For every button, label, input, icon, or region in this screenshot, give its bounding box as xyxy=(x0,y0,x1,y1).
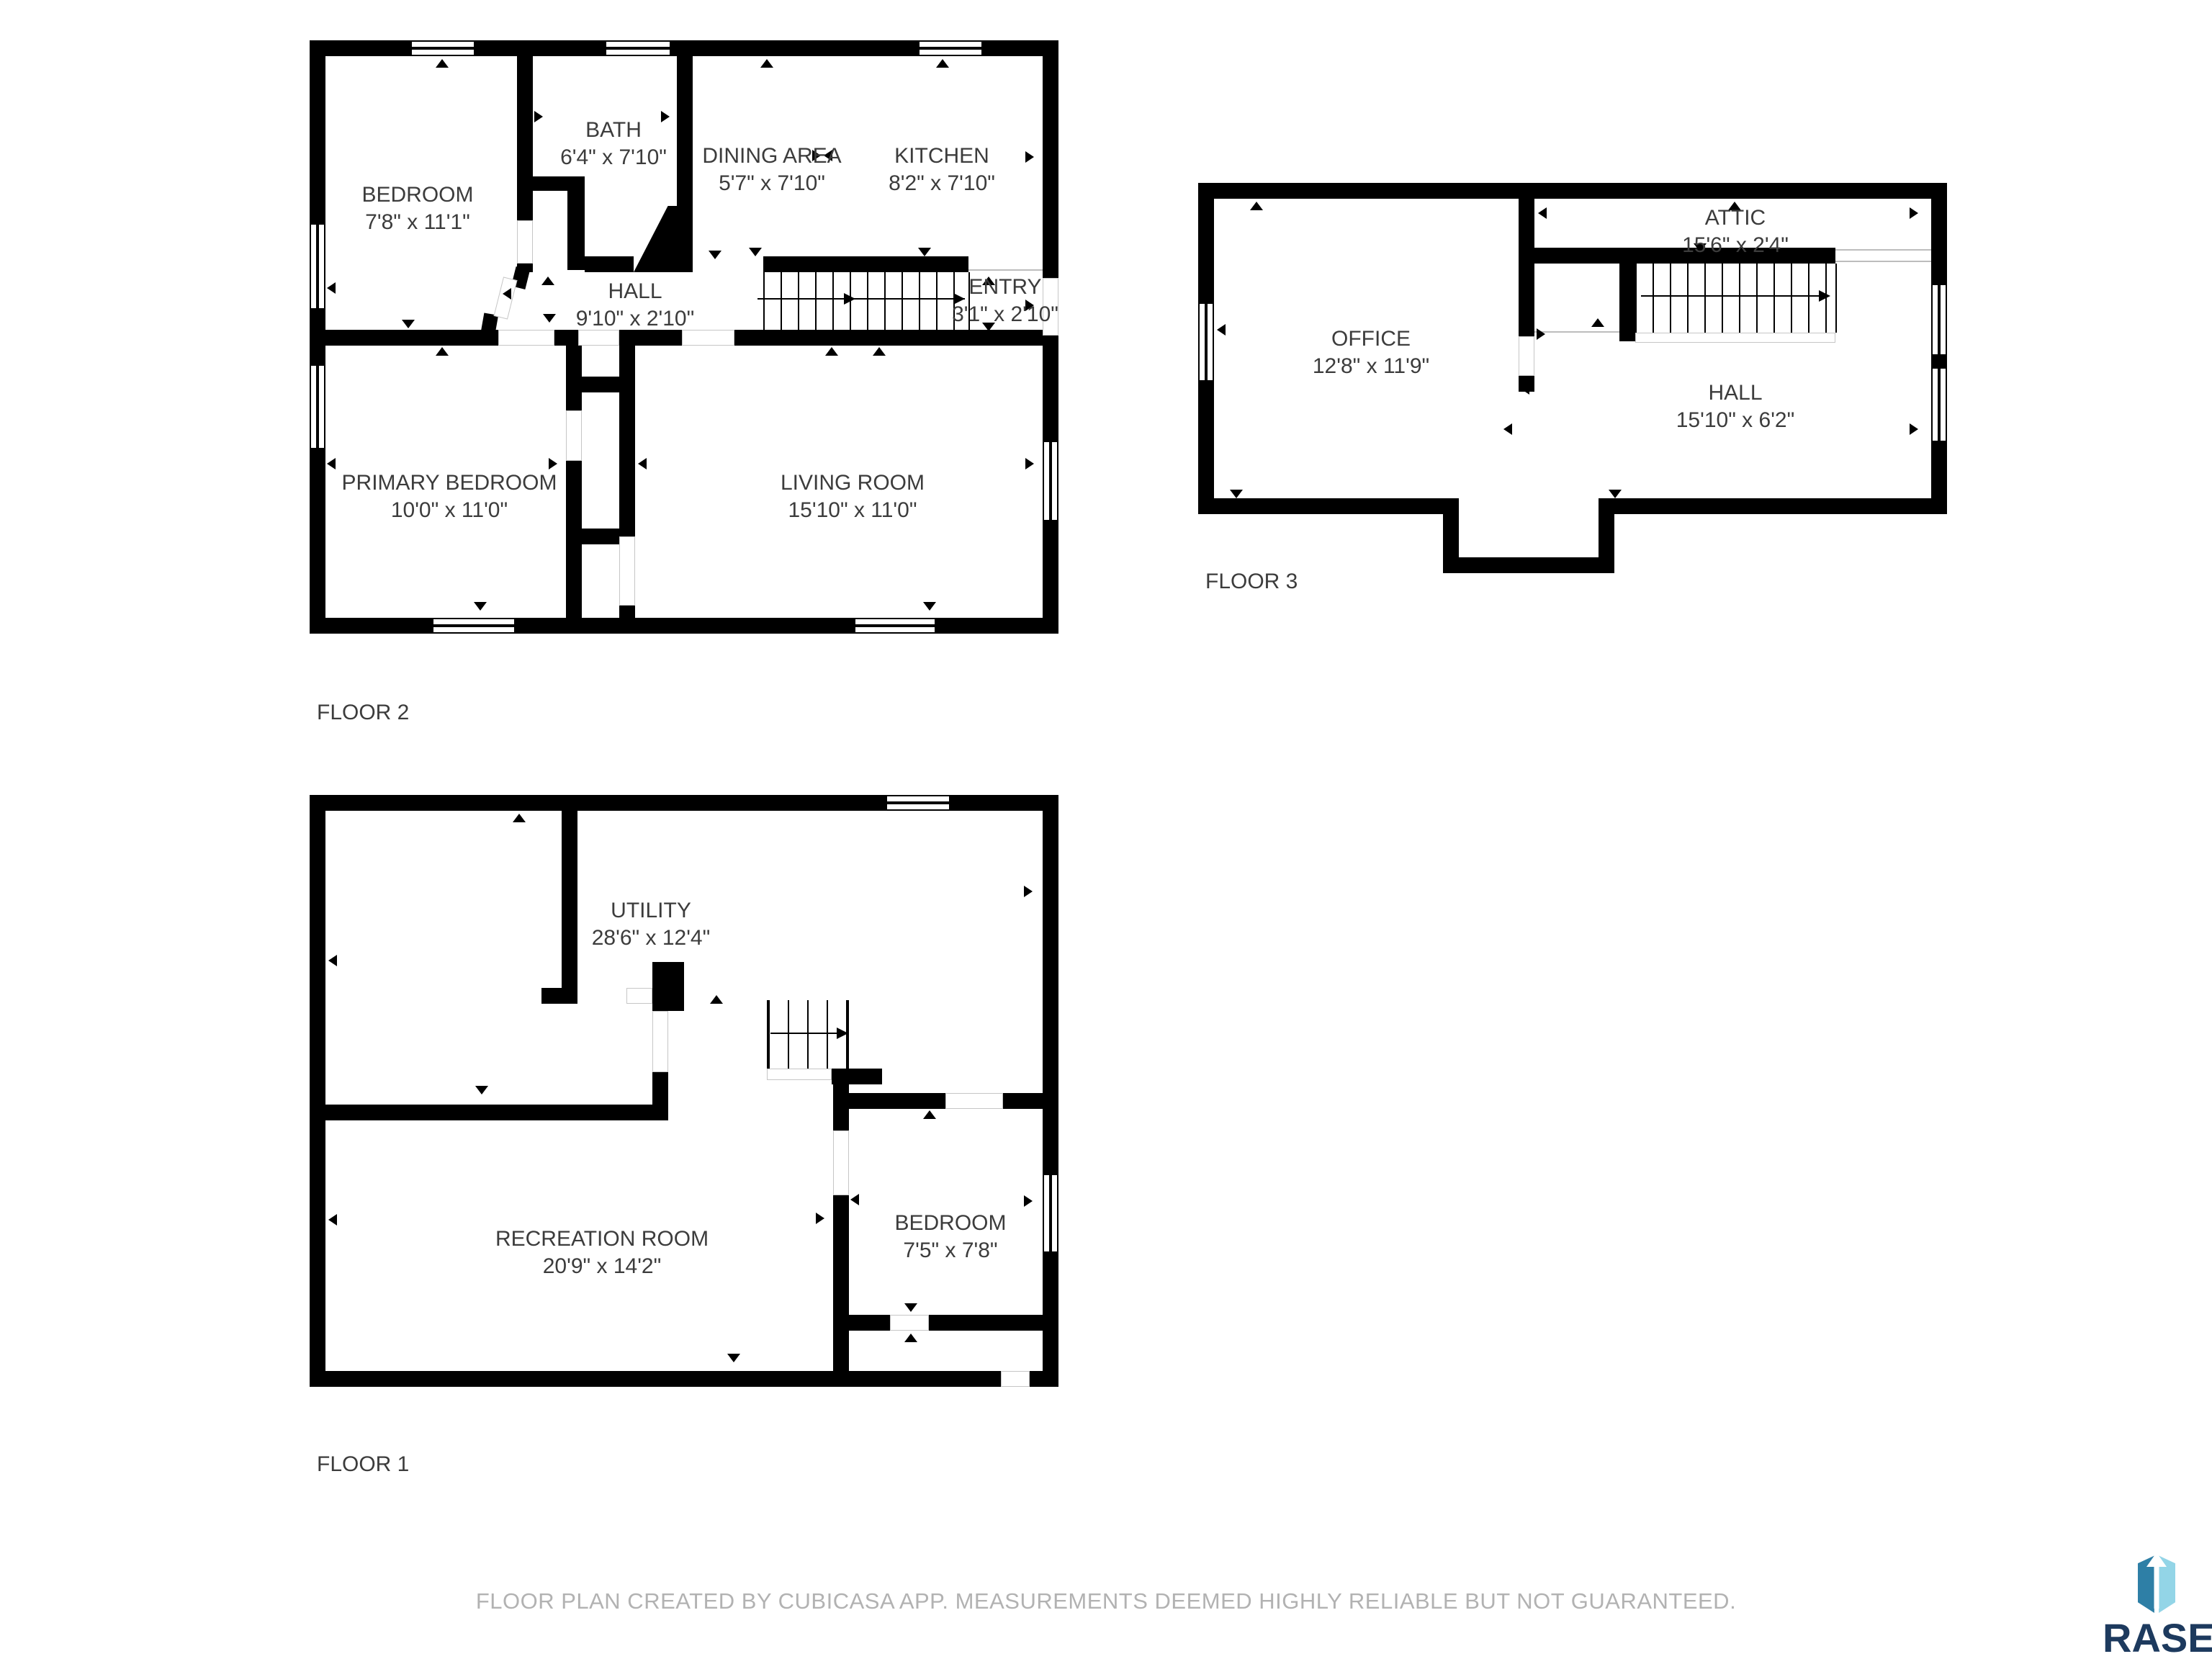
room-label-entry: ENTRY 3'1" x 2'10" xyxy=(952,274,1058,328)
door-opening xyxy=(1001,1371,1030,1387)
room-dims: 8'2" x 7'10" xyxy=(889,170,995,197)
door-opening xyxy=(626,988,652,1004)
room-name: HALL xyxy=(576,278,695,305)
arrow-marker-icon xyxy=(513,814,526,822)
room-label-bedroom-floor1: BEDROOM 7'5" x 7'8" xyxy=(894,1210,1006,1264)
arrow-marker-icon xyxy=(760,59,773,68)
door-opening xyxy=(945,1093,1003,1109)
arrow-marker-icon xyxy=(474,602,487,611)
window xyxy=(605,40,671,56)
door-opening xyxy=(652,1011,668,1072)
room-name: OFFICE xyxy=(1313,325,1429,353)
room-dims: 6'4" x 7'10" xyxy=(560,144,667,171)
door-opening xyxy=(619,536,635,606)
arrow-marker-icon xyxy=(1910,423,1918,435)
arrow-marker-icon xyxy=(328,1214,337,1226)
wall-segment xyxy=(929,1315,1043,1331)
arrow-marker-icon xyxy=(1250,202,1263,210)
wall-segment xyxy=(554,330,578,346)
arrow-marker-icon xyxy=(549,458,557,469)
wall-segment xyxy=(1198,183,1947,199)
wall-segment xyxy=(310,618,1058,634)
arrow-marker-icon xyxy=(1910,207,1918,219)
arrow-marker-icon xyxy=(825,347,838,356)
arrow-marker-icon xyxy=(1024,886,1033,897)
logo-arrow-up-icon xyxy=(2146,1552,2167,1567)
window xyxy=(1043,1174,1058,1253)
window xyxy=(1931,284,1947,356)
arrow-marker-icon xyxy=(327,458,336,469)
window xyxy=(1043,441,1058,521)
arrow-marker-icon xyxy=(436,347,449,356)
rase-building-icon xyxy=(2138,1554,2175,1613)
wall-segment xyxy=(1003,1093,1043,1109)
door-opening xyxy=(517,220,533,264)
arrow-marker-icon xyxy=(436,59,449,68)
room-name: ENTRY xyxy=(952,274,1058,301)
arrow-marker-icon xyxy=(904,1303,917,1312)
room-name: BEDROOM xyxy=(894,1210,1006,1237)
wall-segment xyxy=(619,346,635,536)
room-label-bath: BATH 6'4" x 7'10" xyxy=(560,117,667,171)
room-dims: 3'1" x 2'10" xyxy=(952,301,1058,328)
room-label-recreation-room: RECREATION ROOM 20'9" x 14'2" xyxy=(495,1226,709,1280)
stair-landing xyxy=(767,1069,832,1080)
stair-direction-arrow xyxy=(1641,295,1825,297)
wall-segment xyxy=(310,1371,1058,1387)
arrow-marker-icon xyxy=(638,458,647,469)
room-label-hall: HALL 9'10" x 2'10" xyxy=(576,278,695,333)
entry-edge-line xyxy=(968,269,1043,271)
wall-segment xyxy=(763,256,968,272)
room-label-bedroom: BEDROOM 7'8" x 11'1" xyxy=(361,181,473,236)
room-label-utility: UTILITY 28'6" x 12'4" xyxy=(592,897,711,952)
room-name: BEDROOM xyxy=(361,181,473,209)
stair-direction-arrow xyxy=(757,298,965,300)
arrow-marker-icon xyxy=(1537,328,1545,340)
arrow-marker-icon xyxy=(1521,383,1529,395)
room-label-office: OFFICE 12'8" x 11'9" xyxy=(1313,325,1429,380)
wall-segment xyxy=(1443,557,1614,573)
window xyxy=(854,618,936,634)
room-label-living-room: LIVING ROOM 15'10" x 11'0" xyxy=(781,469,925,524)
wall-segment xyxy=(652,1072,668,1105)
room-name: RECREATION ROOM xyxy=(495,1226,709,1253)
wall-segment xyxy=(1043,795,1058,1387)
floor3-caption: FLOOR 3 xyxy=(1205,569,1298,595)
wall-segment xyxy=(566,377,635,392)
floor1-plan: UTILITY 28'6" x 12'4" RECREATION ROOM 20… xyxy=(310,795,1058,1387)
wall-segment xyxy=(1043,40,1058,634)
staircase xyxy=(1635,264,1837,333)
arrow-marker-icon xyxy=(850,1194,859,1205)
wall-segment xyxy=(585,256,634,272)
floor1-caption: FLOOR 1 xyxy=(317,1452,409,1478)
room-dims: 7'8" x 11'1" xyxy=(361,209,473,236)
arrow-marker-icon xyxy=(1503,423,1512,435)
wall-segment xyxy=(833,1315,890,1331)
floor-plan-page: BEDROOM 7'8" x 11'1" BATH 6'4" x 7'10" D… xyxy=(0,0,2212,1659)
stair-arrowhead-icon xyxy=(837,1028,848,1039)
arrow-marker-icon xyxy=(710,995,723,1004)
wall-segment xyxy=(517,40,533,220)
chimney xyxy=(652,962,684,1011)
arrow-marker-icon xyxy=(402,320,415,328)
room-name: BATH xyxy=(560,117,667,144)
room-label-kitchen: KITCHEN 8'2" x 7'10" xyxy=(889,143,995,197)
window xyxy=(1198,302,1214,382)
room-dims: 28'6" x 12'4" xyxy=(592,925,711,952)
arrow-marker-icon xyxy=(1025,151,1034,163)
wall-segment xyxy=(619,606,635,618)
room-name: UTILITY xyxy=(592,897,711,925)
wall-segment xyxy=(833,1080,849,1130)
window xyxy=(410,40,475,56)
logo-wordmark: RASE xyxy=(2103,1617,2211,1659)
window xyxy=(918,40,983,56)
arrow-marker-icon xyxy=(873,347,886,356)
room-dims: 15'10" x 11'0" xyxy=(781,497,925,524)
arrow-marker-icon xyxy=(475,1086,488,1094)
window xyxy=(432,618,516,634)
room-dims: 15'6" x 2'4" xyxy=(1682,232,1789,259)
door-opening xyxy=(1519,336,1534,376)
room-name: DINING AREA xyxy=(702,143,841,170)
arrow-marker-icon xyxy=(918,248,931,256)
wall-segment xyxy=(833,1195,849,1372)
room-label-attic: ATTIC 15'6" x 2'4" xyxy=(1682,204,1789,259)
room-dims: 15'10" x 6'2" xyxy=(1676,407,1795,434)
floor2-plan: BEDROOM 7'8" x 11'1" BATH 6'4" x 7'10" D… xyxy=(310,40,1058,634)
arrow-marker-icon xyxy=(904,1334,917,1342)
arrow-marker-icon xyxy=(543,314,556,323)
room-name: PRIMARY BEDROOM xyxy=(342,469,557,497)
door-opening xyxy=(566,410,582,461)
stair-direction-arrow xyxy=(770,1033,842,1034)
arrow-marker-icon xyxy=(1025,458,1034,469)
window xyxy=(310,364,325,449)
wall-segment xyxy=(1619,264,1635,341)
door-opening xyxy=(833,1130,849,1195)
room-dims: 5'7" x 7'10" xyxy=(702,170,841,197)
arrow-marker-icon xyxy=(1024,1195,1033,1207)
wall-segment xyxy=(310,795,325,1387)
wall-segment xyxy=(325,330,498,346)
stair-arrowhead-icon xyxy=(844,293,855,305)
arrow-marker-icon xyxy=(534,111,543,122)
attic-edge-line xyxy=(1835,261,1931,262)
wall-segment xyxy=(325,1105,668,1120)
room-name: HALL xyxy=(1676,379,1795,407)
arrow-marker-icon xyxy=(749,248,762,256)
arrow-marker-icon xyxy=(1217,324,1226,336)
arrow-marker-icon xyxy=(328,955,337,966)
stairwell-edge-line xyxy=(1534,331,1619,333)
wall-segment xyxy=(849,1093,945,1109)
stair-landing xyxy=(1635,333,1835,343)
wall-segment xyxy=(677,40,693,206)
wall-segment xyxy=(734,330,1043,346)
arrow-marker-icon xyxy=(503,288,511,300)
window xyxy=(886,795,950,811)
window xyxy=(310,223,325,310)
chimney xyxy=(634,206,693,272)
arrow-marker-icon xyxy=(816,1213,824,1224)
wall-segment xyxy=(310,40,325,634)
room-dims: 10'0" x 11'0" xyxy=(342,497,557,524)
disclaimer-text: FLOOR PLAN CREATED BY CUBICASA APP. MEAS… xyxy=(0,1588,2212,1614)
notch-opening xyxy=(1459,498,1599,514)
arrow-marker-icon xyxy=(1609,490,1622,498)
room-label-primary-bedroom: PRIMARY BEDROOM 10'0" x 11'0" xyxy=(342,469,557,524)
door-opening xyxy=(890,1315,929,1331)
arrow-marker-icon xyxy=(923,602,936,611)
arrow-marker-icon xyxy=(709,251,721,259)
arrow-marker-icon xyxy=(923,1110,936,1119)
room-name: ATTIC xyxy=(1682,204,1789,232)
logo-arrow-stem xyxy=(2154,1565,2159,1609)
wall-segment xyxy=(541,988,562,1004)
room-label-dining: DINING AREA 5'7" x 7'10" xyxy=(702,143,841,197)
arrow-marker-icon xyxy=(541,276,554,285)
rase-logo: RASE xyxy=(2103,1554,2211,1659)
arrow-marker-icon xyxy=(1538,207,1547,219)
arrow-marker-icon xyxy=(327,282,336,294)
room-dims: 20'9" x 14'2" xyxy=(495,1253,709,1280)
room-name: LIVING ROOM xyxy=(781,469,925,497)
arrow-marker-icon xyxy=(1591,318,1604,327)
arrow-marker-icon xyxy=(936,59,949,68)
staircase xyxy=(763,272,970,330)
floor2-caption: FLOOR 2 xyxy=(317,700,409,726)
arrow-marker-icon xyxy=(1230,490,1243,498)
room-dims: 7'5" x 7'8" xyxy=(894,1237,1006,1264)
door-opening xyxy=(498,330,554,346)
room-name: KITCHEN xyxy=(889,143,995,170)
wall-segment xyxy=(567,176,585,270)
room-label-hall-floor3: HALL 15'10" x 6'2" xyxy=(1676,379,1795,434)
room-dims: 9'10" x 2'10" xyxy=(576,305,695,333)
room-dims: 12'8" x 11'9" xyxy=(1313,353,1429,380)
wall-segment xyxy=(562,795,577,1004)
arrow-marker-icon xyxy=(727,1354,740,1362)
attic-edge-line xyxy=(1835,249,1931,251)
window xyxy=(1931,367,1947,442)
floor3-plan: ATTIC 15'6" x 2'4" OFFICE 12'8" x 11'9" … xyxy=(1198,183,1947,514)
stair-arrowhead-icon xyxy=(1819,290,1830,302)
